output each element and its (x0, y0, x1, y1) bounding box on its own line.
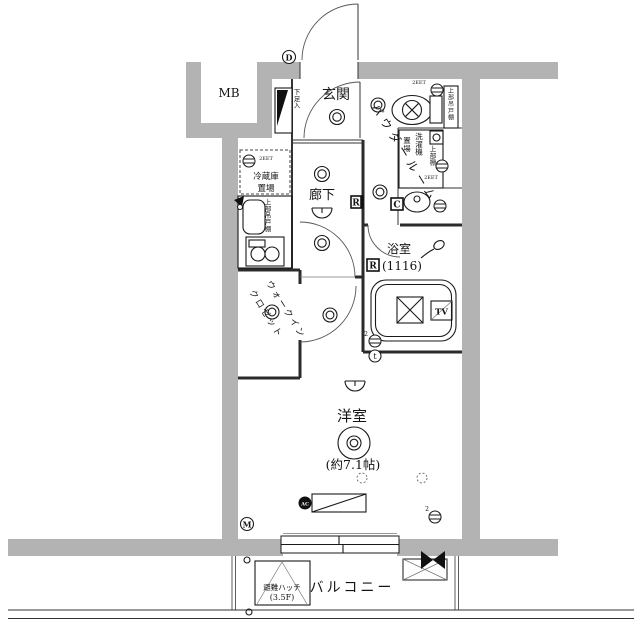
bathroom-size-label: (1116) (382, 259, 422, 273)
washer-shelf-label: 上部棚 (430, 144, 437, 167)
balcony-railing (8, 610, 634, 619)
hatch-label-2: (3.5F) (270, 593, 295, 602)
ac-badge: AC (300, 502, 309, 508)
hallway-area: 廊下 R (300, 167, 363, 278)
bedroom-size-label: (約7.1帖) (326, 457, 381, 472)
balcony-area: 避難ハッチ (3.5F) バルコニー (8, 551, 634, 619)
downlight-icon (373, 185, 387, 199)
evacuation-hatch-icon: 避難ハッチ (3.5F) (255, 561, 310, 605)
kitchen-faucet-base (238, 205, 243, 210)
downlight-icon (323, 308, 337, 322)
downlight-icon-inner (333, 113, 341, 121)
ceiling-light-mid (347, 436, 361, 450)
tub-cover-icon (397, 297, 423, 323)
wall-light-icon (312, 208, 332, 218)
wall-segment-left (222, 138, 238, 540)
outlet-icon (429, 511, 441, 523)
door-swing-icon (300, 286, 356, 342)
room-label-bedroom: 洋室 (337, 407, 367, 425)
room-label-hallway: 廊下 (309, 187, 335, 203)
wall-segment-right (462, 79, 480, 540)
drain-icon (244, 557, 250, 563)
wall-light-icon (345, 381, 365, 391)
wall-segment-bottom (8, 539, 283, 556)
shoe-cabinet-label: 下足入 (294, 88, 301, 110)
bath-wall-symbols: 2 t (364, 331, 381, 362)
wall-segment-top (358, 62, 558, 79)
wall-segment (272, 62, 300, 79)
controller-badge: C (393, 201, 400, 211)
outlet-tag: 2EET (424, 175, 438, 181)
sliding-window-icon (281, 534, 399, 554)
outlet-icon (369, 335, 381, 347)
remote-badge-bar (360, 196, 363, 208)
mb-label: MB (218, 86, 239, 100)
outlet-icon (436, 160, 448, 172)
outlet-tag: 2 (425, 506, 429, 513)
front-door-swing-icon (302, 4, 358, 60)
downlight-icon (330, 110, 345, 125)
floor-plan-page: MB D 下足入 玄関 パウダールーム 上部吊戸棚 2EET 洗濯 (0, 0, 640, 640)
kitchen-shelf-label: 上部吊戸棚 (265, 197, 272, 233)
bath-remote-badge: R (369, 262, 377, 272)
stove-grill (249, 240, 265, 247)
hook-dashed-circle (417, 473, 427, 483)
outlet-icon (431, 84, 443, 96)
hatch-label-1: 避難ハッチ (263, 582, 301, 592)
washer-label-1: 洗濯機 (415, 131, 423, 157)
toilet-tank (430, 96, 442, 123)
stove-burner (251, 247, 265, 261)
outlet-tag: 2EET (412, 80, 426, 86)
bedroom-area: 洋室 (約7.1帖) AC M 2 (241, 381, 442, 531)
wall-segment (186, 123, 272, 138)
washer-faucet-circle (433, 134, 440, 141)
sink-icon (243, 200, 265, 234)
downlight-icon (315, 167, 330, 182)
downlight-icon-inner (376, 188, 384, 196)
outlet-tag: 2EET (259, 156, 273, 162)
kitchen-area: 2EET 冷蔵庫 置場 上部吊戸棚 (234, 150, 292, 268)
downlight-icon-inner (326, 311, 334, 319)
washer-label-2: 置場 (403, 136, 411, 153)
tv-badge: TV (435, 308, 448, 318)
walk-in-closet: ウォークイン クロゼット (246, 279, 356, 342)
fridge-label-1: 冷蔵庫 (253, 171, 279, 182)
downlight-icon-inner (318, 239, 326, 247)
stove-burner (265, 247, 279, 261)
hall-remote-badge: R (352, 199, 360, 209)
toilet-shelf-label: 上部吊戸棚 (448, 87, 454, 121)
fridge-label-2: 置場 (257, 183, 275, 194)
shower-icon (421, 239, 446, 258)
floor-plan: MB D 下足入 玄関 パウダールーム 上部吊戸棚 2EET 洗濯 (0, 0, 640, 640)
door-jamb (300, 62, 358, 79)
downlight-icon-inner (318, 170, 326, 178)
bathroom-area: 浴室 R (1116) TV (367, 225, 456, 341)
ceiling-light-inner (350, 439, 358, 447)
genkan-step-line (292, 140, 363, 143)
room-label-genkan: 玄関 (322, 86, 350, 103)
outlet-icon (243, 155, 255, 167)
washer-faucet-icon (430, 131, 443, 144)
door-swing-icon (300, 222, 355, 277)
room-label-balcony: バルコニー (310, 580, 395, 596)
downlight-icon (315, 236, 330, 251)
meter-badge: M (243, 520, 252, 530)
outlet-icon (434, 200, 446, 212)
outlet-tag: 2 (364, 331, 368, 338)
ceiling-light-icon (338, 427, 370, 459)
ac-unit-diag (312, 494, 366, 512)
door-badge: D (286, 53, 293, 63)
room-label-bathroom: 浴室 (387, 241, 411, 256)
hook-dashed-circle (357, 473, 367, 483)
